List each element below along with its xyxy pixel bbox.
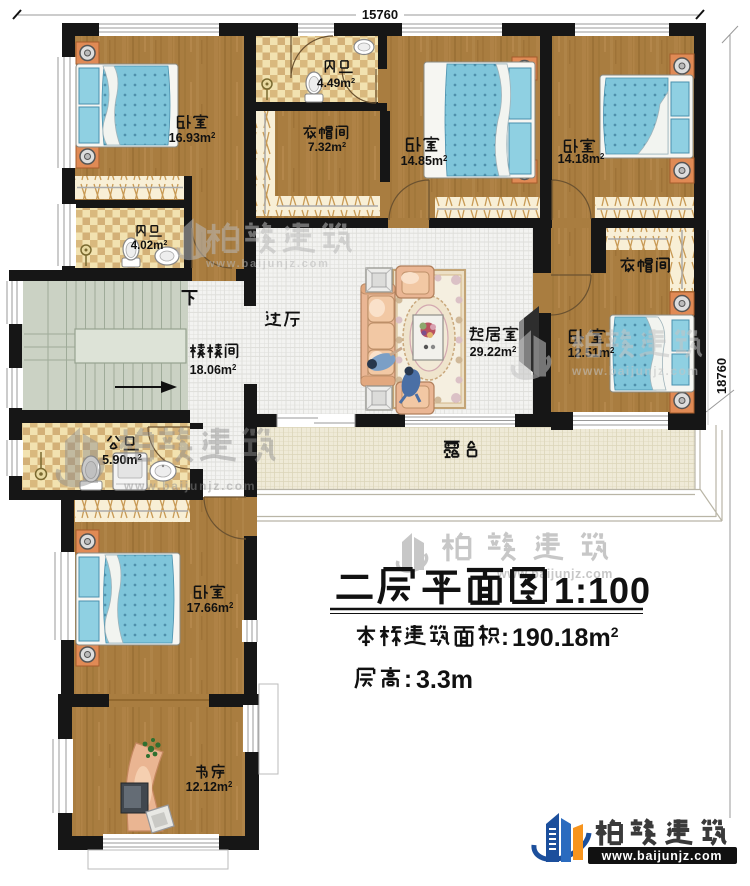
- svg-text::: :: [404, 666, 412, 693]
- svg-text:16.93m2: 16.93m2: [169, 131, 216, 145]
- svg-text:www.baijunjz.com: www.baijunjz.com: [601, 849, 723, 863]
- svg-text:190.18m2: 190.18m2: [512, 624, 619, 652]
- svg-text:www.baijunjz.com: www.baijunjz.com: [123, 479, 256, 493]
- svg-text::: :: [501, 624, 509, 651]
- svg-text:12.12m2: 12.12m2: [186, 780, 233, 794]
- svg-text:4.02m2: 4.02m2: [131, 239, 168, 252]
- svg-text:www.baijunjz.com: www.baijunjz.com: [571, 364, 700, 378]
- svg-text:4.49m2: 4.49m2: [317, 76, 355, 90]
- svg-text:14.18m2: 14.18m2: [558, 152, 605, 166]
- svg-text:18760: 18760: [714, 358, 729, 394]
- svg-text:12.51m2: 12.51m2: [568, 346, 615, 360]
- svg-text:3.3m: 3.3m: [416, 666, 473, 694]
- svg-text:18.06m2: 18.06m2: [190, 363, 237, 377]
- svg-text:7.32m2: 7.32m2: [308, 140, 346, 154]
- svg-text:17.66m2: 17.66m2: [187, 601, 234, 615]
- svg-text:15760: 15760: [362, 7, 398, 22]
- svg-text:1:100: 1:100: [554, 570, 651, 611]
- svg-text:29.22m2: 29.22m2: [470, 345, 517, 359]
- svg-text:14.85m2: 14.85m2: [401, 154, 448, 168]
- svg-text:www.baijunjz.com: www.baijunjz.com: [205, 258, 330, 270]
